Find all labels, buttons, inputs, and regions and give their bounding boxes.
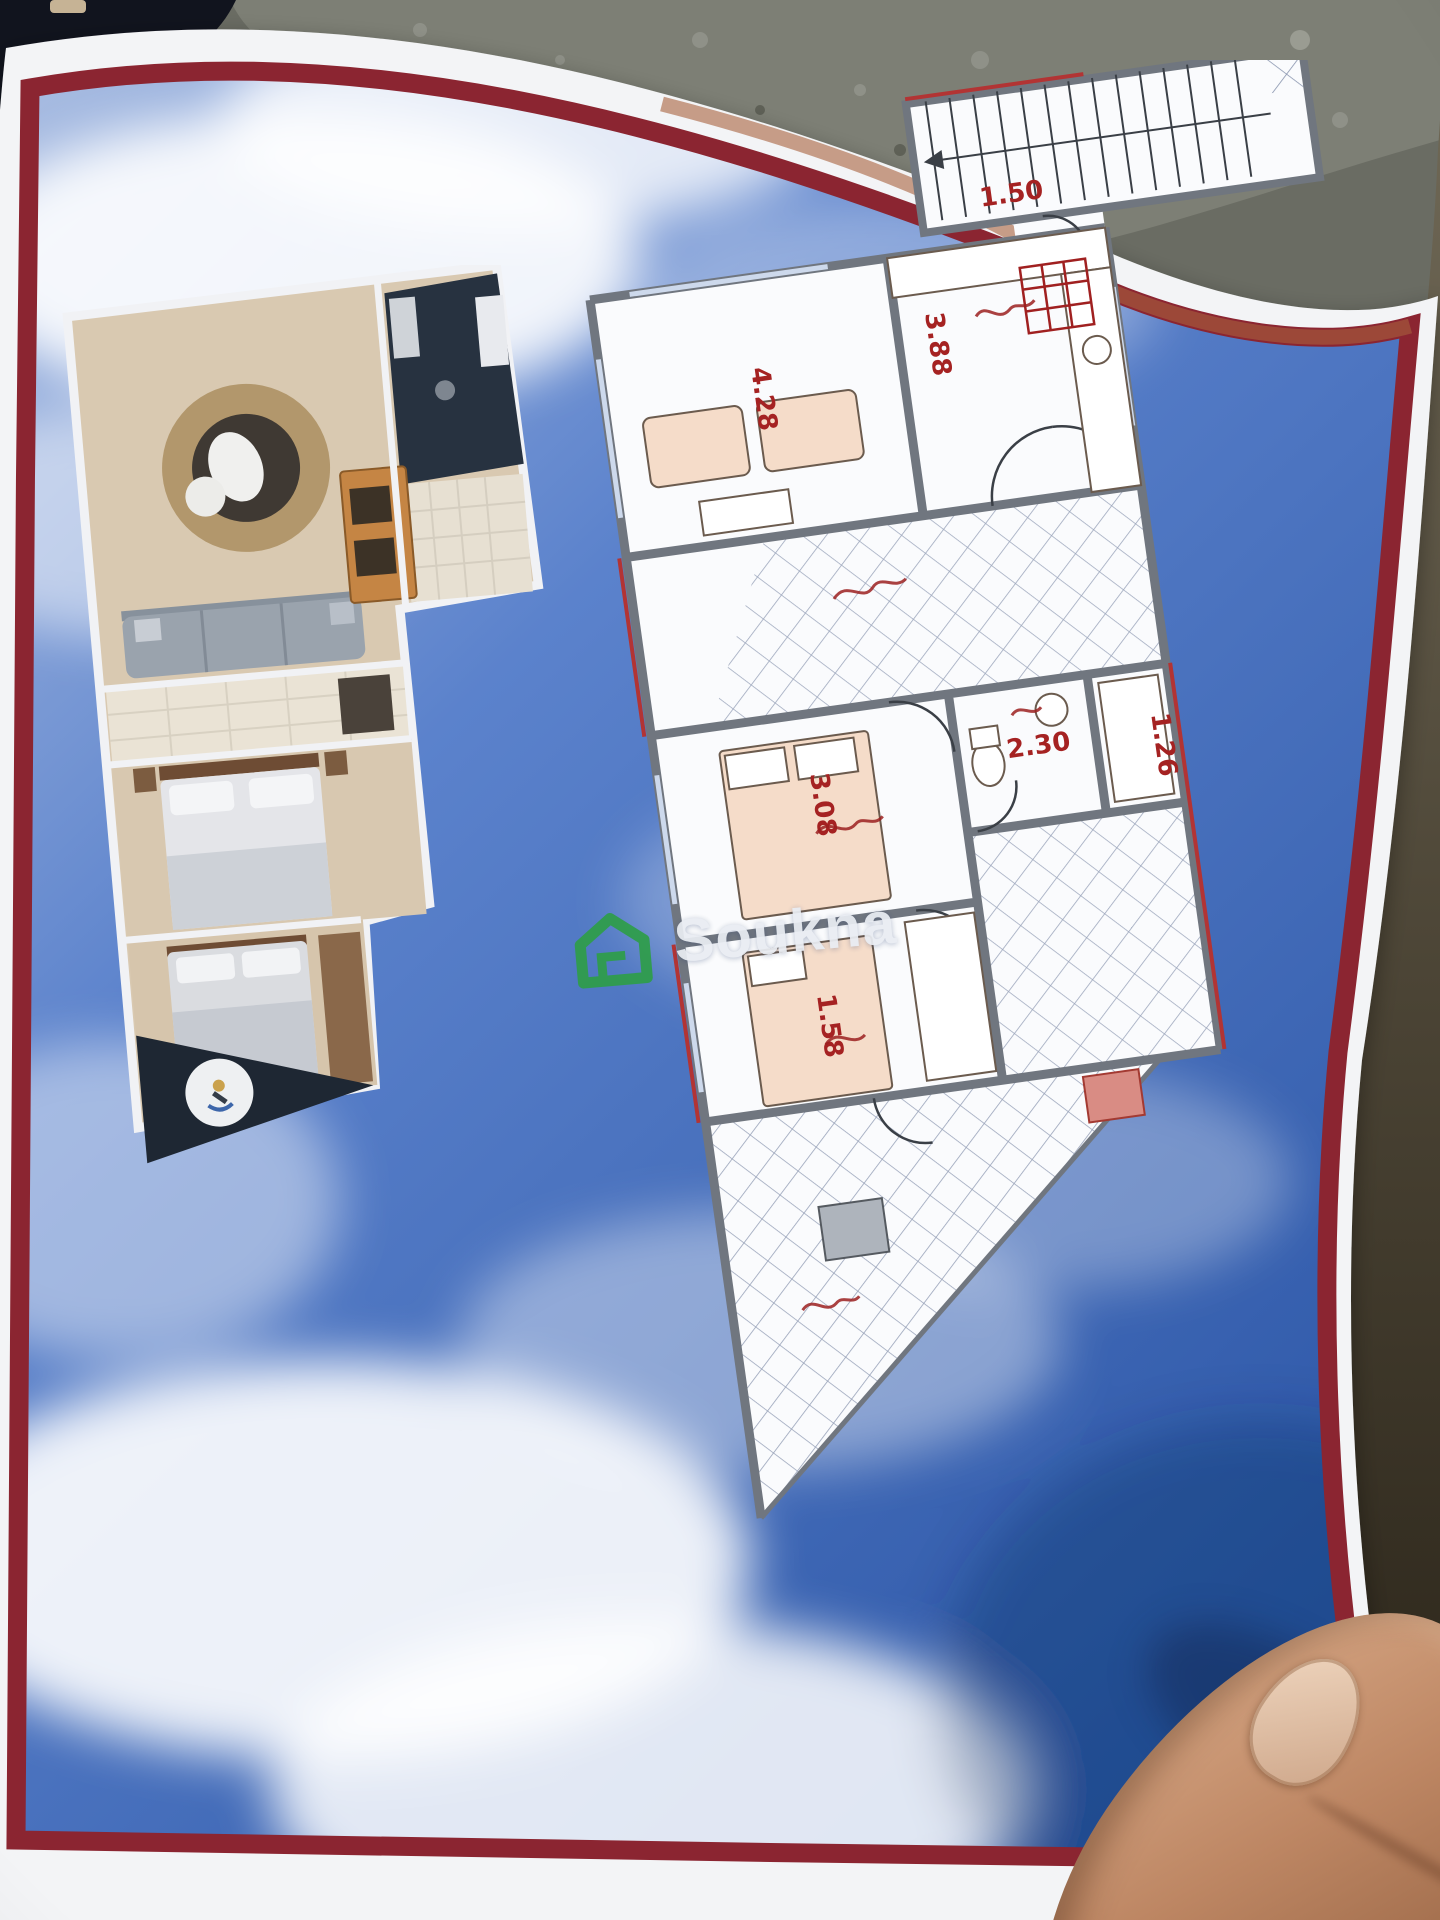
beige-object-top xyxy=(50,0,86,13)
watermark-brand: Soukna xyxy=(671,887,899,975)
plan-3d-render xyxy=(20,265,580,1215)
soukna-house-icon xyxy=(563,903,662,991)
plan-2d: 3.88 1.50 4.28 2.30 1.26 3.08 1.58 xyxy=(500,60,1400,1590)
photo-of-floorplan-poster: 3.88 1.50 4.28 2.30 1.26 3.08 1.58 xyxy=(0,0,1440,1920)
